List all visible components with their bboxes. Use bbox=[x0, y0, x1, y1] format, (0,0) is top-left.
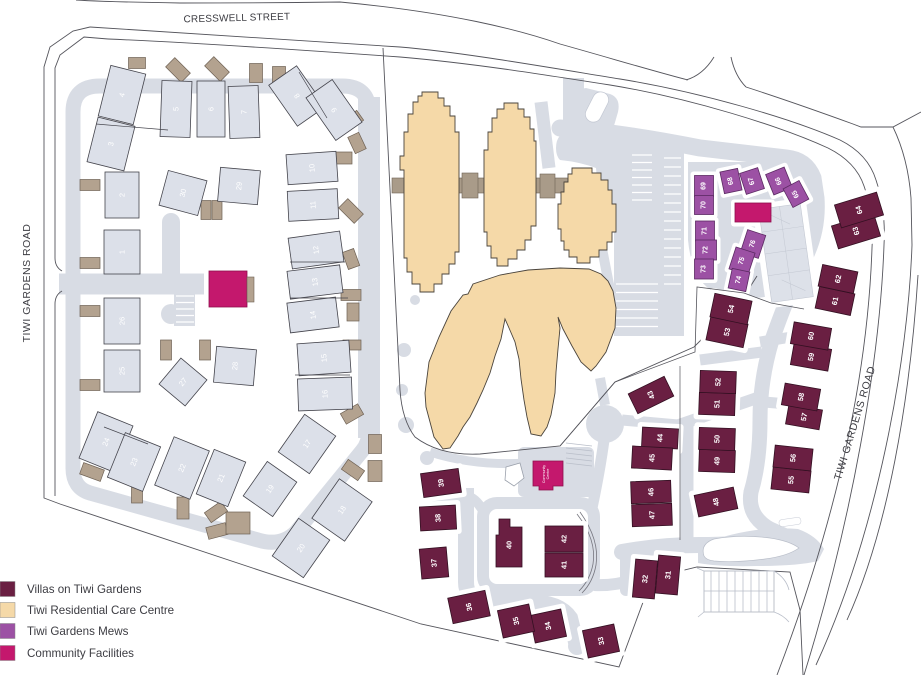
svg-text:6: 6 bbox=[207, 107, 216, 111]
svg-text:7: 7 bbox=[239, 110, 248, 114]
svg-text:38: 38 bbox=[433, 514, 442, 523]
svg-text:49: 49 bbox=[712, 457, 721, 466]
svg-text:73: 73 bbox=[701, 265, 708, 273]
svg-text:42: 42 bbox=[560, 535, 569, 543]
svg-text:46: 46 bbox=[646, 488, 655, 497]
svg-text:5: 5 bbox=[171, 107, 180, 111]
svg-text:32: 32 bbox=[640, 574, 650, 583]
svg-text:Tiwi Gardens Mews: Tiwi Gardens Mews bbox=[27, 625, 129, 638]
svg-text:57: 57 bbox=[799, 412, 809, 422]
svg-text:25: 25 bbox=[118, 367, 127, 375]
svg-text:40: 40 bbox=[505, 541, 514, 549]
svg-text:37: 37 bbox=[429, 558, 439, 567]
svg-text:58: 58 bbox=[796, 392, 806, 402]
svg-text:60: 60 bbox=[806, 331, 816, 341]
svg-text:41: 41 bbox=[560, 561, 569, 569]
svg-text:45: 45 bbox=[647, 454, 656, 463]
svg-text:70: 70 bbox=[701, 201, 708, 209]
svg-text:59: 59 bbox=[806, 352, 816, 362]
svg-text:31: 31 bbox=[663, 570, 673, 579]
svg-text:50: 50 bbox=[712, 435, 721, 444]
svg-text:39: 39 bbox=[436, 478, 446, 488]
svg-text:56: 56 bbox=[788, 453, 798, 462]
svg-text:1: 1 bbox=[118, 250, 127, 254]
svg-text:51: 51 bbox=[712, 400, 721, 409]
svg-text:TIWI GARDENS ROAD: TIWI GARDENS ROAD bbox=[21, 224, 33, 343]
svg-text:28: 28 bbox=[230, 361, 240, 370]
svg-text:11: 11 bbox=[308, 201, 317, 209]
svg-text:72: 72 bbox=[703, 246, 710, 254]
svg-text:16: 16 bbox=[320, 390, 329, 399]
svg-text:Tiwi Residential Care Centre: Tiwi Residential Care Centre bbox=[27, 604, 174, 617]
svg-text:71: 71 bbox=[702, 227, 709, 235]
svg-text:10: 10 bbox=[307, 164, 317, 173]
svg-text:55: 55 bbox=[786, 475, 796, 484]
svg-text:13: 13 bbox=[310, 277, 320, 286]
svg-text:Community Facilities: Community Facilities bbox=[27, 647, 134, 660]
svg-text:47: 47 bbox=[647, 511, 656, 520]
svg-text:44: 44 bbox=[655, 433, 664, 443]
svg-text:Villas on Tiwi Gardens: Villas on Tiwi Gardens bbox=[27, 583, 142, 596]
svg-text:14: 14 bbox=[308, 310, 318, 319]
svg-text:29: 29 bbox=[234, 181, 244, 190]
svg-text:2: 2 bbox=[118, 193, 127, 197]
svg-text:15: 15 bbox=[319, 354, 329, 363]
svg-text:12: 12 bbox=[311, 245, 321, 255]
svg-text:26: 26 bbox=[118, 317, 127, 325]
svg-text:69: 69 bbox=[701, 182, 708, 190]
svg-text:52: 52 bbox=[713, 378, 722, 387]
